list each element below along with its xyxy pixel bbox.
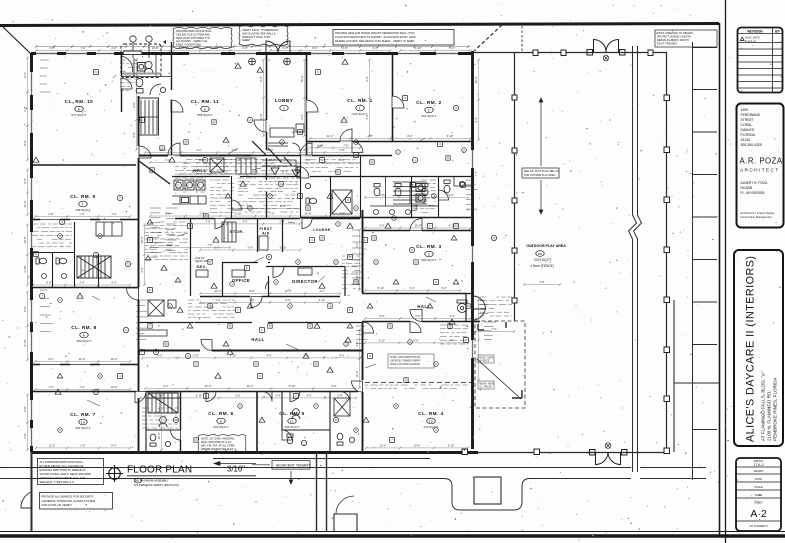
svg-text:OF 9 SHEETS: OF 9 SHEETS — [749, 524, 767, 528]
svg-text:12'-0": 12'-0" — [355, 371, 359, 378]
svg-text:2'-8": 2'-8" — [79, 281, 84, 285]
svg-text:8'-6": 8'-6" — [474, 317, 478, 322]
svg-text:563 SQ.FT.: 563 SQ.FT. — [421, 258, 436, 262]
svg-text:11: 11 — [290, 420, 294, 424]
svg-text:3'-4": 3'-4" — [247, 246, 252, 250]
svg-text:2'-8": 2'-8" — [23, 433, 27, 438]
svg-text:3'-4": 3'-4" — [23, 267, 27, 272]
svg-text:ALICE'S DAYCARE II (INTERIORS): ALICE'S DAYCARE II (INTERIORS) — [745, 256, 757, 442]
svg-text:FIRST: FIRST — [260, 227, 273, 231]
svg-text:4'-0": 4'-0" — [242, 220, 247, 224]
svg-text:20: 20 — [538, 252, 542, 256]
svg-text:6'-0": 6'-0" — [259, 76, 263, 81]
svg-text:4'-0": 4'-0" — [235, 394, 240, 398]
svg-text:2'-8": 2'-8" — [132, 102, 136, 107]
svg-text:4'-0": 4'-0" — [379, 224, 384, 228]
svg-text:4'-0": 4'-0" — [306, 394, 311, 398]
svg-text:5'-10": 5'-10" — [230, 354, 237, 358]
svg-text:12'-0": 12'-0" — [49, 444, 56, 448]
svg-text:2'-8": 2'-8" — [337, 394, 342, 398]
svg-text:REVISION: REVISION — [747, 29, 763, 33]
svg-text:SEC.: SEC. — [196, 264, 207, 269]
svg-text:5'-10": 5'-10" — [289, 384, 296, 388]
svg-text:4'-0": 4'-0" — [249, 298, 254, 302]
svg-text:6'-0": 6'-0" — [331, 384, 336, 388]
svg-text:8: 8 — [78, 108, 80, 112]
svg-text:12'-0": 12'-0" — [285, 289, 292, 293]
svg-text:CL. RM. 9: CL. RM. 9 — [70, 194, 95, 199]
svg-text:9'-2": 9'-2" — [196, 148, 201, 152]
svg-text:10: 10 — [81, 421, 85, 425]
svg-text:EXIST. FINISHES: EXIST. FINISHES — [657, 43, 677, 46]
svg-text:4'-0": 4'-0" — [282, 170, 287, 174]
svg-text:6'-0": 6'-0" — [355, 272, 359, 277]
svg-text:858 SQ.FT.: 858 SQ.FT. — [197, 113, 212, 117]
svg-text:7'-6": 7'-6" — [303, 354, 308, 358]
svg-text:3: 3 — [428, 253, 430, 257]
svg-text:WHERE SHOWN SEE ELEV. 4: WHERE SHOWN SEE ELEV. 4 — [201, 448, 237, 451]
svg-text:2: 2 — [428, 109, 430, 113]
svg-text:SCALE: SCALE — [754, 485, 763, 489]
svg-text:5: 5 — [283, 107, 285, 111]
svg-text:DATE: DATE — [755, 477, 762, 481]
svg-text:PROVIDE NEW ACOUSTICAL: PROVIDE NEW ACOUSTICAL — [176, 29, 212, 33]
svg-text:8'-6": 8'-6" — [23, 306, 27, 311]
svg-text:11'-4": 11'-4" — [269, 158, 275, 162]
svg-text:CL. RM. 10: CL. RM. 10 — [65, 99, 93, 104]
svg-text:CL. RM. 6: CL. RM. 6 — [208, 411, 233, 416]
svg-text:NEW 6' HIGH: NEW 6' HIGH — [480, 384, 494, 386]
svg-text:3'-4": 3'-4" — [448, 339, 453, 343]
svg-text:CL. RM. 11: CL. RM. 11 — [191, 99, 219, 104]
svg-text:22'-4": 22'-4" — [247, 384, 254, 388]
svg-text:6: 6 — [83, 334, 85, 338]
svg-text:7'-6": 7'-6" — [491, 327, 496, 331]
svg-text:434 SQ.FT.: 434 SQ.FT. — [284, 425, 299, 429]
svg-text:CL. RM. 3: CL. RM. 3 — [416, 244, 441, 249]
svg-text:8'-6": 8'-6" — [415, 314, 420, 318]
svg-text:7'-6": 7'-6" — [207, 243, 212, 247]
svg-text:10'-8": 10'-8" — [415, 224, 422, 228]
svg-text:305-350-4328: 305-350-4328 — [741, 143, 762, 147]
svg-text:391 SQ.FT.: 391 SQ.FT. — [75, 426, 90, 430]
svg-text:450 SQ.FT.: 450 SQ.FT. — [76, 339, 91, 343]
svg-text:DRAWN: DRAWN — [754, 469, 764, 473]
svg-text:2'-8": 2'-8" — [367, 134, 372, 138]
svg-text:HALL: HALL — [251, 337, 264, 342]
svg-text:11'-4": 11'-4" — [167, 243, 173, 247]
svg-text:AID: AID — [262, 232, 270, 236]
svg-text:4'-0": 4'-0" — [300, 114, 304, 119]
svg-text:12'-0": 12'-0" — [380, 444, 387, 448]
svg-text:22'-4": 22'-4" — [215, 289, 222, 293]
svg-text:12'-0": 12'-0" — [259, 114, 263, 121]
svg-text:LOBBY: LOBBY — [275, 98, 294, 103]
svg-text:16'-0": 16'-0" — [267, 148, 274, 152]
svg-text:33134: 33134 — [741, 138, 751, 142]
svg-text:22'-4": 22'-4" — [23, 201, 27, 208]
svg-text:3'-4": 3'-4" — [215, 298, 220, 302]
svg-text:ALL INTERIOR PARTITIONS SHALL: ALL INTERIOR PARTITIONS SHALL — [40, 460, 85, 464]
svg-text:VERIFY EXIST. STOREFRONT: VERIFY EXIST. STOREFRONT — [242, 28, 279, 32]
svg-text:2'-8": 2'-8" — [539, 280, 544, 284]
svg-text:7'-6": 7'-6" — [79, 212, 84, 216]
svg-text:ALBERT R. POZA: ALBERT R. POZA — [741, 181, 769, 185]
svg-text:EXISTING PARTITION TO REMAIN I: EXISTING PARTITION TO REMAIN IF — [40, 468, 86, 472]
svg-text:ARCHITECT: ARCHITECT — [740, 168, 780, 174]
svg-text:8'-6": 8'-6" — [413, 339, 418, 343]
svg-text:4'-0": 4'-0" — [140, 267, 144, 272]
svg-text:3'-4": 3'-4" — [474, 117, 478, 122]
svg-text:FERDINAND: FERDINAND — [741, 113, 761, 117]
svg-text:CL. RM. 5: CL. RM. 5 — [279, 411, 304, 416]
svg-text:6'-0": 6'-0" — [23, 140, 27, 145]
svg-text:2473 SQ.FT.: 2473 SQ.FT. — [534, 258, 552, 262]
svg-text:CORAL: CORAL — [741, 123, 753, 127]
svg-text:NO PERSONS VERIFY (BLD'G/OA): NO PERSONS VERIFY (BLD'G/OA) — [134, 483, 179, 487]
svg-text:(50) MAXIMUM ASSEMBLY: (50) MAXIMUM ASSEMBLY — [134, 479, 169, 483]
svg-text:8'-6": 8'-6" — [46, 281, 51, 285]
svg-text:6'-0": 6'-0" — [441, 286, 446, 290]
svg-text:1: 1 — [359, 107, 361, 111]
svg-text:A.R. POZA: A.R. POZA — [740, 157, 783, 166]
svg-text:10'-8": 10'-8" — [23, 237, 27, 244]
svg-text:7'-6": 7'-6" — [205, 220, 210, 224]
svg-text:3/16": 3/16" — [227, 465, 245, 474]
svg-text:5'-10": 5'-10" — [448, 444, 455, 448]
svg-text:3'-4": 3'-4" — [275, 394, 280, 398]
svg-text:LOUNGE: LOUNGE — [313, 228, 331, 232]
svg-text:5'-10": 5'-10" — [196, 394, 203, 398]
svg-text:Construction Management: Construction Management — [740, 215, 772, 219]
svg-text:CL. RM. 4: CL. RM. 4 — [418, 411, 443, 416]
svg-text:9: 9 — [220, 420, 222, 424]
svg-text:5'-10": 5'-10" — [23, 340, 27, 347]
svg-text:16'-0": 16'-0" — [300, 76, 304, 83]
svg-text:EXTEND ABOVE CLG. AND BRACE: EXTEND ABOVE CLG. AND BRACE — [40, 464, 84, 468]
svg-text:9'-2": 9'-2" — [48, 357, 53, 361]
svg-text:CHKD: CHKD — [755, 493, 762, 497]
svg-text:SEE WALL TYPES REF. A-9: SEE WALL TYPES REF. A-9 — [40, 480, 75, 484]
svg-text:5'-10": 5'-10" — [319, 298, 326, 302]
svg-text:AND HOOK-UP VERIFY: AND HOOK-UP VERIFY — [42, 503, 73, 507]
svg-text:16'-0": 16'-0" — [474, 77, 478, 84]
svg-text:5'-10": 5'-10" — [447, 134, 454, 138]
svg-text:16'-0": 16'-0" — [157, 433, 161, 440]
svg-text:12'-0": 12'-0" — [199, 158, 206, 162]
svg-text:17-A-2: 17-A-2 — [753, 463, 763, 467]
svg-text:8'-6": 8'-6" — [249, 289, 254, 293]
svg-text:SHEET: SHEET — [242, 38, 251, 42]
svg-text:2'-8": 2'-8" — [80, 444, 85, 448]
svg-text:SOUND RATED, AND IF REQ'D PROV: SOUND RATED, AND IF REQ'D PROVIDE — [40, 472, 92, 476]
svg-text:5'-10": 5'-10" — [449, 224, 456, 228]
svg-text:8'-6": 8'-6" — [407, 134, 412, 138]
svg-text:3'-4": 3'-4" — [303, 148, 308, 152]
svg-text:3'-4": 3'-4" — [365, 114, 369, 119]
svg-text:22'-4": 22'-4" — [79, 357, 86, 361]
svg-text:6'-0": 6'-0" — [165, 158, 170, 162]
svg-text:2'-8": 2'-8" — [339, 148, 344, 152]
svg-text:FL. AR 0000525: FL. AR 0000525 — [741, 191, 765, 195]
svg-text:OFFICE: OFFICE — [232, 278, 250, 283]
svg-text:CL. RM. 8: CL. RM. 8 — [71, 325, 96, 330]
svg-text:Architecture * Interior Design: Architecture * Interior Design — [740, 211, 775, 215]
svg-text:5'-10": 5'-10" — [378, 286, 385, 290]
svg-text:3'-4": 3'-4" — [355, 341, 359, 346]
svg-text:6'-0": 6'-0" — [448, 193, 453, 197]
svg-text:9'-2": 9'-2" — [163, 384, 168, 388]
svg-text:WINDOW TYPES, THIS: WINDOW TYPES, THIS — [242, 35, 270, 39]
svg-text:3'-4": 3'-4" — [365, 76, 369, 81]
svg-text:AT FLAMINGO FALLS, BLDG. "A": AT FLAMINGO FALLS, BLDG. "A" — [761, 371, 766, 441]
svg-text:PEMBROKE PINES, FLORIDA: PEMBROKE PINES, FLORIDA — [773, 377, 778, 441]
svg-text:CL. RM. 7: CL. RM. 7 — [70, 412, 95, 417]
svg-text:± 9mm (FENCE): ± 9mm (FENCE) — [530, 264, 554, 268]
svg-text:16'-0": 16'-0" — [111, 357, 118, 361]
svg-text:2'-8": 2'-8" — [193, 354, 198, 358]
svg-text:6'-0": 6'-0" — [111, 281, 116, 285]
svg-text:2'-8": 2'-8" — [279, 220, 284, 224]
svg-text:EXIST. GATE: EXIST. GATE — [480, 357, 494, 360]
svg-text:4'-0": 4'-0" — [355, 242, 359, 247]
svg-text:FINAL LOCATION IN FIELD: FINAL LOCATION IN FIELD — [390, 363, 420, 366]
svg-text:ADJACENT TENANT: ADJACENT TENANT — [276, 464, 311, 468]
svg-text:A·2: A·2 — [750, 508, 767, 520]
svg-text:8'-6": 8'-6" — [379, 314, 384, 318]
svg-text:NCARB: NCARB — [741, 186, 753, 190]
svg-text:4'-0": 4'-0" — [266, 354, 271, 358]
svg-text:9: 9 — [204, 108, 206, 112]
svg-text:561 SQ.FT.: 561 SQ.FT. — [421, 114, 436, 118]
svg-text:677 SQ.FT.: 677 SQ.FT. — [71, 113, 86, 117]
svg-text:8'-6": 8'-6" — [413, 193, 418, 197]
svg-text:5'-10": 5'-10" — [379, 339, 386, 343]
svg-text:ALL ROOMS - VERIFY ALL: ALL ROOMS - VERIFY ALL — [176, 39, 208, 43]
svg-text:7'-6": 7'-6" — [343, 144, 348, 148]
svg-text:10'-8": 10'-8" — [414, 444, 421, 448]
svg-text:8'-6": 8'-6" — [339, 354, 344, 358]
svg-text:4'-0": 4'-0" — [319, 289, 324, 293]
svg-text:LOCATION AND EXTENT AS SHOWN -: LOCATION AND EXTENT AS SHOWN - ALIGN WIT… — [335, 35, 416, 39]
svg-text:7'-6": 7'-6" — [111, 212, 116, 216]
svg-text:9'-2": 9'-2" — [23, 72, 27, 77]
svg-text:9'-2": 9'-2" — [474, 357, 478, 362]
svg-text:22'-4": 22'-4" — [327, 134, 334, 138]
svg-text:3'-4": 3'-4" — [449, 314, 454, 318]
svg-text:DIRECTOR: DIRECTOR — [292, 279, 318, 284]
svg-text:1990: 1990 — [741, 108, 749, 112]
svg-text:& FENCE: & FENCE — [480, 361, 490, 363]
svg-text:414 SQ.FT.: 414 SQ.FT. — [213, 425, 228, 429]
svg-text:AND GLAZING SEE WALL &: AND GLAZING SEE WALL & — [242, 31, 276, 35]
svg-text:2'-8": 2'-8" — [132, 132, 136, 137]
svg-text:EXIST. CONDITIONS: EXIST. CONDITIONS — [176, 43, 201, 47]
svg-text:3'-4": 3'-4" — [409, 286, 414, 290]
svg-text:8'-6": 8'-6" — [23, 406, 27, 411]
svg-text:CL. RM. 2: CL. RM. 2 — [416, 100, 441, 105]
svg-text:WHERE OCCURS. SEE DETAIL THIS: WHERE OCCURS. SEE DETAIL THIS SHEET - VE… — [335, 39, 415, 43]
svg-text:FOR OUTSIDE PLAY AREA: FOR OUTSIDE PLAY AREA — [524, 174, 556, 177]
svg-text:7'-6": 7'-6" — [48, 385, 53, 389]
svg-text:12'-0": 12'-0" — [205, 384, 212, 388]
svg-text:CL. RM. 1: CL. RM. 1 — [347, 98, 372, 103]
svg-text:2'-8": 2'-8" — [379, 193, 384, 197]
svg-text:7'-6": 7'-6" — [157, 394, 162, 398]
svg-text:8'-6": 8'-6" — [157, 354, 162, 358]
svg-text:7: 7 — [82, 203, 84, 207]
svg-text:10'-8": 10'-8" — [305, 212, 312, 216]
svg-text:FLORIDA: FLORIDA — [741, 133, 756, 137]
svg-text:2'-8": 2'-8" — [48, 212, 53, 216]
svg-text:FLOOR PLAN: FLOOR PLAN — [127, 465, 192, 476]
svg-text:12'-0": 12'-0" — [111, 385, 118, 389]
svg-text:CL. FENCE: CL. FENCE — [480, 387, 492, 389]
svg-text:8'-6": 8'-6" — [111, 444, 116, 448]
svg-text:SEE 1/4" PLOT PLAN VER. A1: SEE 1/4" PLOT PLAN VER. A1 — [524, 170, 559, 173]
svg-text:2'-8": 2'-8" — [339, 212, 344, 216]
svg-text:5'-10": 5'-10" — [280, 246, 287, 250]
svg-text:8'-6": 8'-6" — [285, 298, 290, 302]
svg-text:7'-6": 7'-6" — [79, 385, 84, 389]
svg-text:16'-0": 16'-0" — [140, 237, 144, 244]
svg-text:CEILING TILE SYSTEM AND: CEILING TILE SYSTEM AND — [176, 32, 210, 36]
svg-text:4'-0": 4'-0" — [23, 178, 27, 183]
svg-text:NEW INSULATION ABOVE CLG. TYP.: NEW INSULATION ABOVE CLG. TYP. — [40, 476, 86, 480]
svg-text:PROVIDE NEW 1HR RATED TENANT S: PROVIDE NEW 1HR RATED TENANT SEPARATION … — [335, 31, 415, 35]
svg-text:2100 N. FLAMINGO RD.: 2100 N. FLAMINGO RD. — [767, 390, 772, 441]
svg-text:11'-4": 11'-4" — [280, 204, 286, 208]
svg-text:A-2-1-C: A-2-1-C — [745, 39, 757, 43]
svg-text:5'-10": 5'-10" — [235, 158, 242, 162]
svg-text:12: 12 — [429, 420, 433, 424]
svg-text:NEW LIGHT FIXTURES TYP.: NEW LIGHT FIXTURES TYP. — [176, 36, 210, 40]
svg-text:STREET: STREET — [741, 118, 754, 122]
svg-text:5'-10": 5'-10" — [235, 212, 242, 216]
svg-text:GABLES: GABLES — [741, 128, 755, 132]
